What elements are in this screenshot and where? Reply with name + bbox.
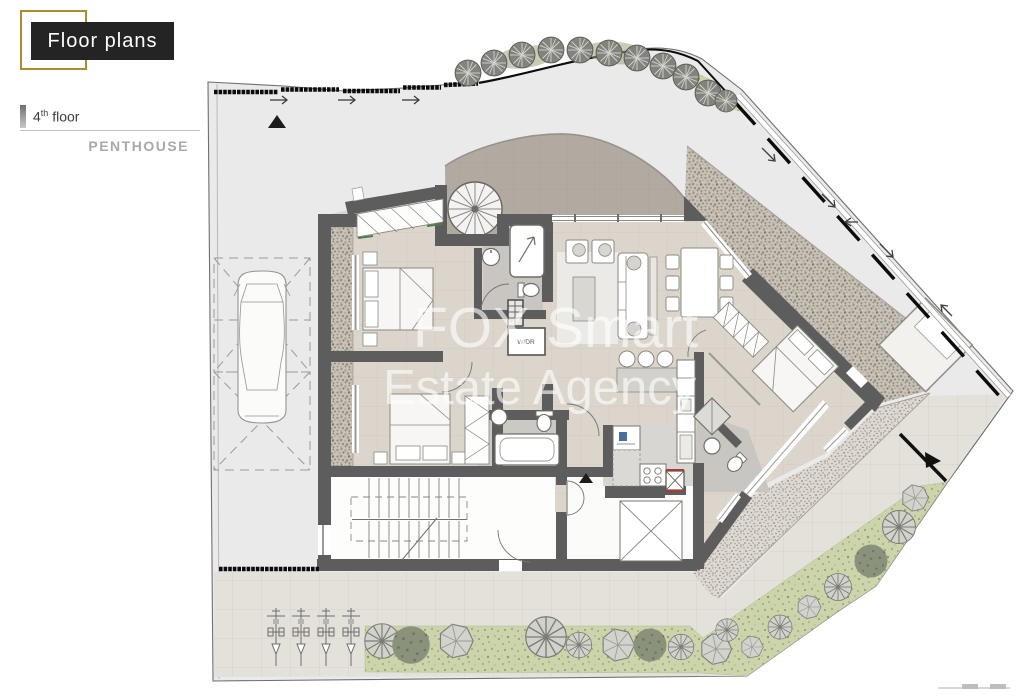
- svg-text:Estate Agency: Estate Agency: [383, 361, 697, 415]
- svg-text:FOX Smart: FOX Smart: [413, 296, 698, 360]
